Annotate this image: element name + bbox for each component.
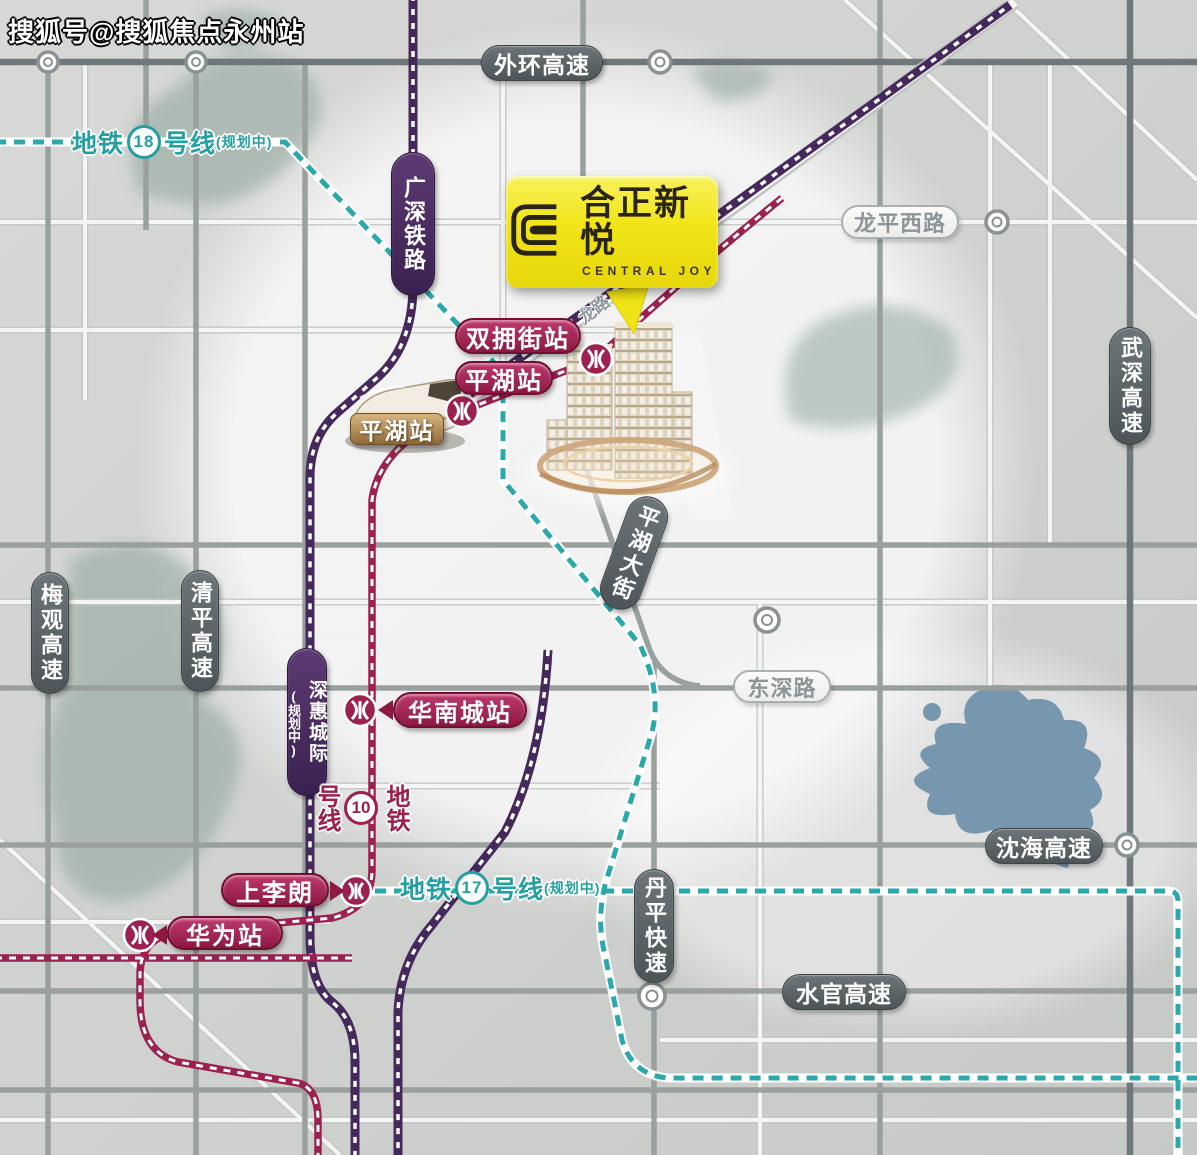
highway-label-qingping: 清平高速 xyxy=(181,570,219,692)
logo-name-cn: 合正新悦 xyxy=(580,186,718,260)
road-label-longping-west: 龙平西路 xyxy=(841,205,959,239)
railway-label-guangshen: 广深铁路 xyxy=(391,152,435,296)
station-label-pinghu-metro: 平湖站 xyxy=(455,361,553,395)
station-label-huawei: 华为站 xyxy=(167,916,283,950)
line10-number-badge: 10 xyxy=(344,791,378,825)
shanglilang-arrow xyxy=(330,881,345,901)
station-label-shuangyongjie: 双拥街站 xyxy=(455,318,581,354)
location-map: 外环高速 梅观高速 清平高速 武深高速 沈海高速 丹平快速 水官高速 平湖大街 … xyxy=(0,0,1197,1155)
railway-label-shenhui: 深惠城际(规划中) xyxy=(287,648,327,796)
highway-label-meiguan: 梅观高速 xyxy=(31,572,69,694)
line18-prefix: 地铁 xyxy=(72,124,124,160)
highway-label-danping: 丹平快速 xyxy=(634,869,674,983)
line18-number-badge: 18 xyxy=(127,125,161,159)
station-label-shanglilang: 上李朗 xyxy=(221,873,329,907)
line17-prefix: 地铁 xyxy=(400,870,452,906)
huanancheng-arrow xyxy=(378,700,393,720)
line18-suffix: 号线 xyxy=(164,124,216,160)
logo-c-icon xyxy=(506,199,568,266)
line17-suffix: 号线 xyxy=(492,870,544,906)
map-canvas xyxy=(0,0,1197,1155)
station-label-huanancheng: 华南城站 xyxy=(393,692,527,728)
huawei-arrow xyxy=(152,925,167,945)
logo-name-en: CENTRAL JOY xyxy=(582,264,716,278)
railway-shenhui-name: 深惠城际 xyxy=(303,680,330,764)
project-logo: 合正新悦 CENTRAL JOY xyxy=(506,176,718,288)
metro-line18-label: 地铁 18 号线 (规划中) xyxy=(72,124,272,160)
highway-label-shenhai: 沈海高速 xyxy=(985,828,1103,864)
highway-label-waihuan: 外环高速 xyxy=(481,45,603,81)
highway-label-shuiguan: 水官高速 xyxy=(782,974,906,1010)
watermark: 搜狐号@搜狐焦点永州站 xyxy=(8,12,304,49)
line10-prefix: 地铁 xyxy=(378,784,413,832)
metro-line17-label: 地铁 17 号线 (规划中) xyxy=(400,870,600,906)
station-label-pinghu-rail: 平湖站 xyxy=(350,413,444,445)
line18-note: (规划中) xyxy=(216,132,272,152)
road-label-dongshen: 东深路 xyxy=(733,670,831,703)
metro-line10-label: 地铁 10 号线 xyxy=(344,733,378,883)
line10-suffix: 号线 xyxy=(309,784,344,832)
line17-number-badge: 17 xyxy=(455,871,489,905)
railway-shenhui-note: (规划中) xyxy=(284,689,303,758)
line17-note: (规划中) xyxy=(544,878,600,898)
highway-label-wushen: 武深高速 xyxy=(1109,327,1151,445)
